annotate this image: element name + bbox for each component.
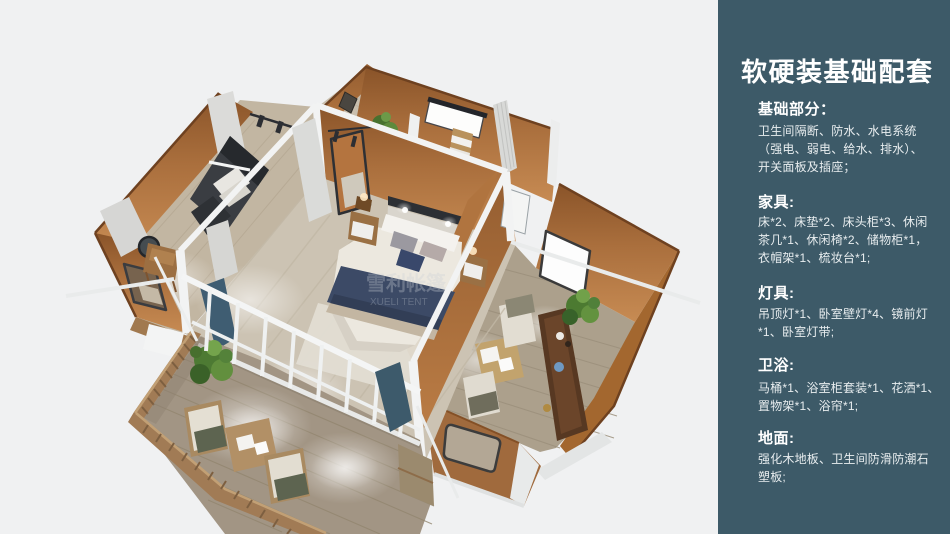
svg-text:XUELI TENT: XUELI TENT — [370, 297, 428, 308]
svg-text:雪利帐篷: 雪利帐篷 — [366, 271, 447, 295]
